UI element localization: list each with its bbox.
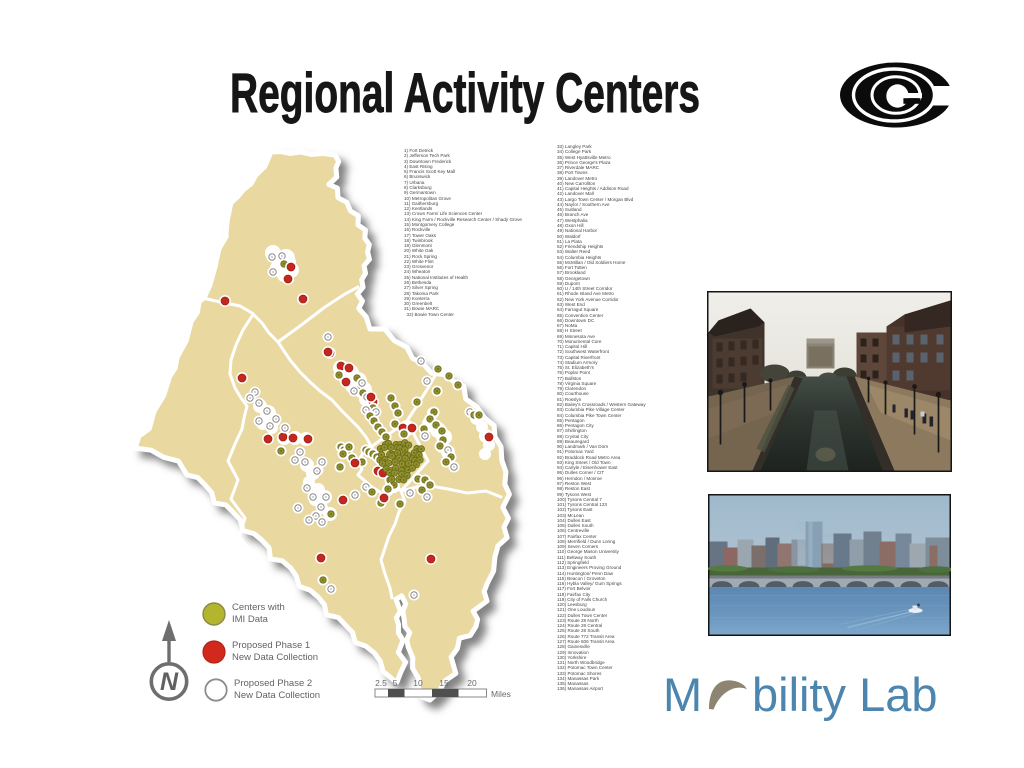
svg-text:15: 15	[439, 678, 449, 688]
svg-text:Miles: Miles	[491, 689, 511, 699]
svg-text:bility Lab: bility Lab	[752, 668, 938, 721]
svg-text:2.5: 2.5	[375, 678, 387, 688]
svg-text:M: M	[663, 668, 702, 721]
svg-text:5: 5	[393, 678, 398, 688]
svg-text:10: 10	[413, 678, 423, 688]
svg-text:N: N	[160, 668, 179, 696]
svg-text:20: 20	[467, 678, 477, 688]
